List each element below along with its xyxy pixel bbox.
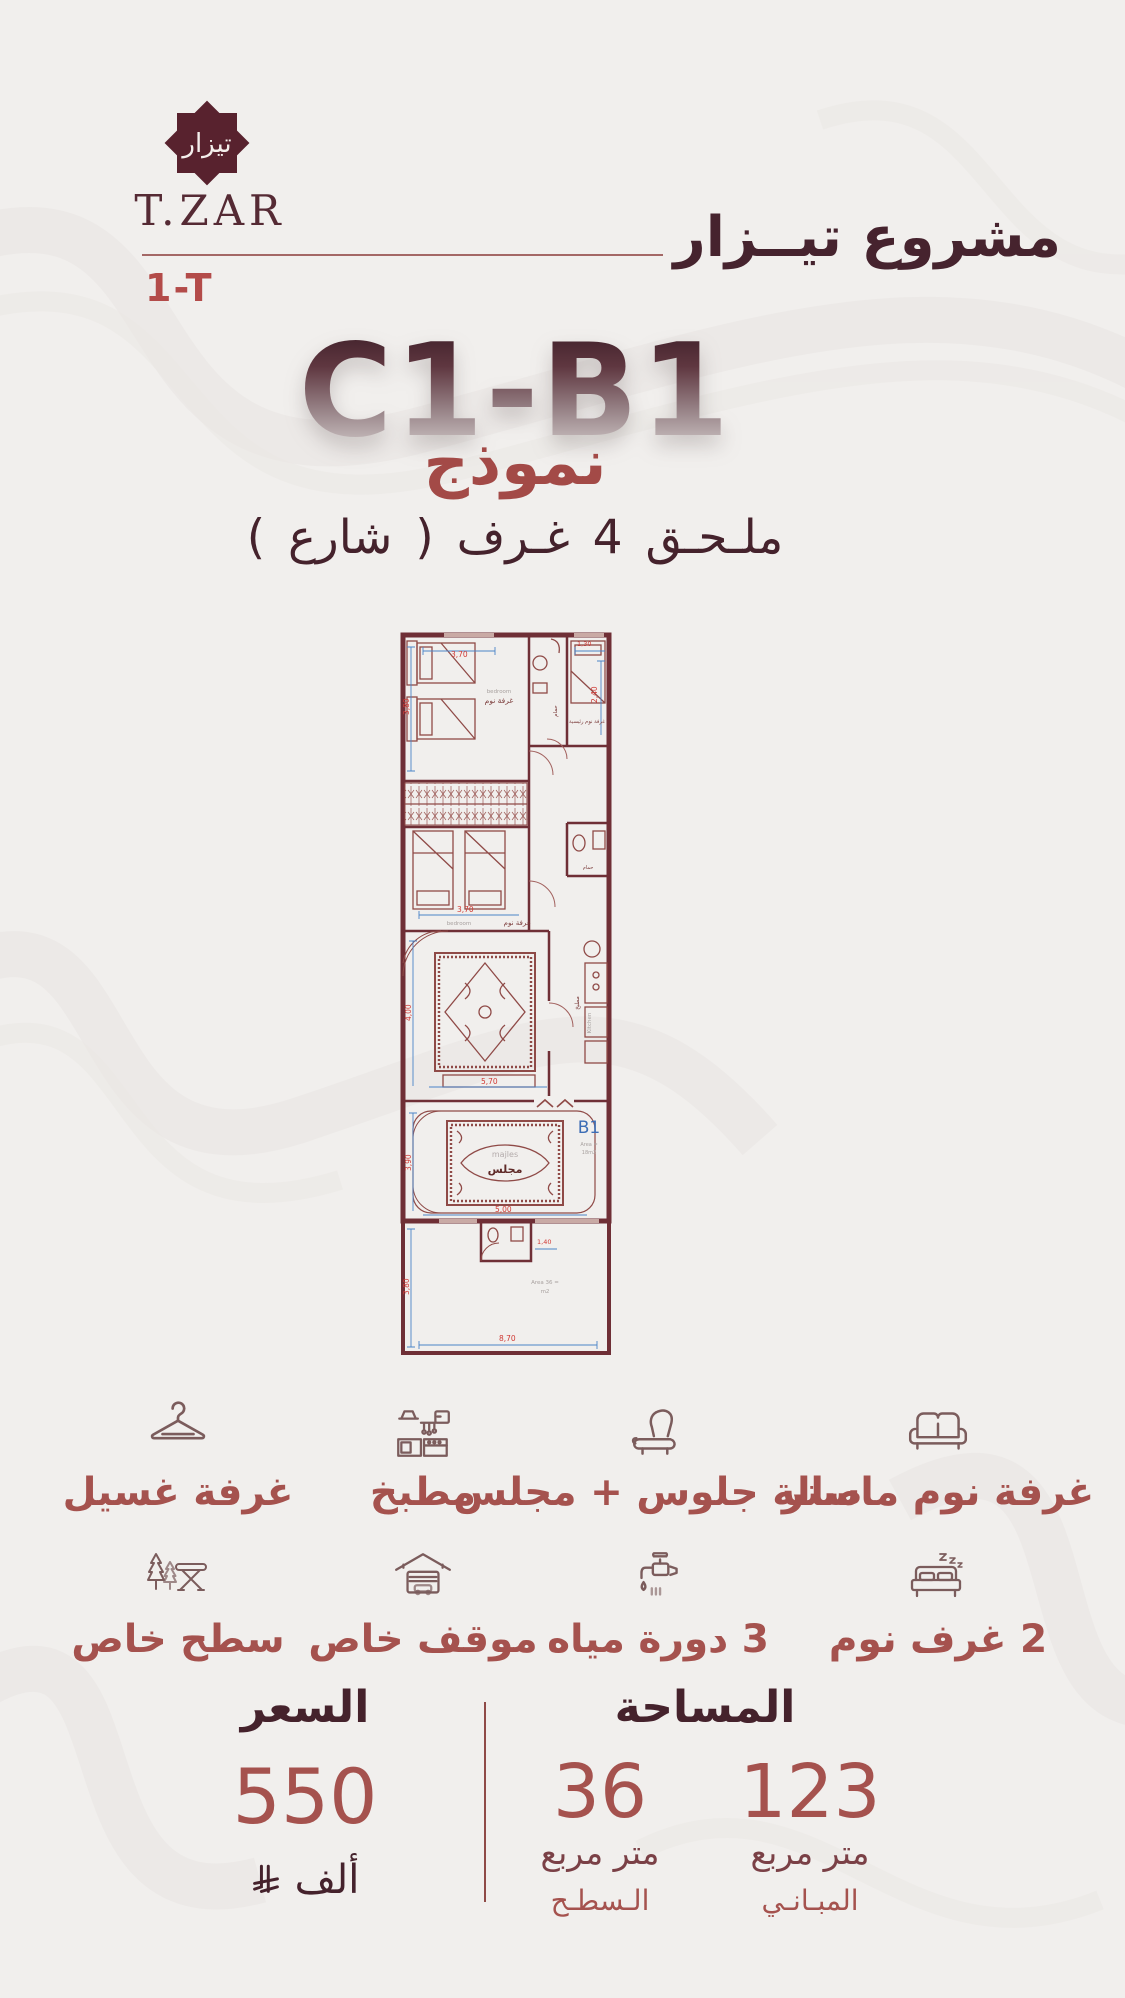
dim-entry: 1,30 [577, 640, 591, 648]
project-title: مشروع تيــزار [674, 205, 1062, 270]
majles-area-line1: Area = [580, 1142, 597, 1148]
feature-laundry-room: غرفة غسيل [38, 1392, 318, 1515]
feature-private-roof: سطح خاص [38, 1539, 318, 1662]
features-row-1: غرفة غسيل مطبخ [38, 1392, 1088, 1515]
feature-label: سطح خاص [71, 1617, 284, 1662]
armchair-icon [625, 1392, 691, 1464]
price-unit-label: ألف [295, 1857, 360, 1903]
page-background: تيزار T.ZAR 1-T مشروع تيــزار C1-B1 نموذ… [0, 0, 1125, 1998]
dim-roof-width: 8,70 [499, 1334, 516, 1343]
feature-label: موقف خاص [308, 1617, 537, 1662]
area-value: 36 [553, 1755, 647, 1829]
plan-walls [403, 635, 609, 1353]
unit-label: B1 [578, 1118, 600, 1138]
roof-area-line2: m2 [541, 1289, 550, 1295]
room-label-bedroom1: غرفة نوم [485, 696, 514, 705]
sofa-icon [903, 1392, 973, 1464]
room-label-bath2: حمام [583, 865, 594, 871]
feature-label: 3 دورة مياه [547, 1617, 769, 1662]
feature-bedrooms: 2 غرف نوم [788, 1539, 1088, 1662]
logo-star-icon: تيزار [160, 96, 254, 190]
features-row-2: سطح خاص موقف خاص [38, 1539, 1088, 1662]
features-grid: غرفة غسيل مطبخ [38, 1392, 1088, 1662]
area-value: 123 [739, 1755, 880, 1829]
feature-bathrooms: 3 دورة مياه [528, 1539, 788, 1662]
feature-label: غرفة نوم ماستر [782, 1470, 1094, 1515]
price-title: السعر [115, 1682, 495, 1733]
stats-divider [484, 1702, 486, 1902]
price-unit: ألف [115, 1857, 495, 1903]
room-label-bedroom1-en: bedroom [487, 689, 512, 695]
area-block: المساحة 123 متر مربع المبـانـي 36 متر مر… [495, 1682, 915, 1917]
feature-private-parking: موقف خاص [318, 1539, 528, 1662]
hanger-icon [145, 1392, 211, 1464]
area-items: 123 متر مربع المبـانـي 36 متر مربع الـسط… [495, 1755, 915, 1917]
room-label-kitchen-ar: مطبخ [574, 996, 581, 1010]
kitchen-icon [390, 1392, 456, 1464]
dim-majles-height: 3,90 [404, 1154, 413, 1171]
area-item-buildings: 123 متر مربع المبـانـي [705, 1755, 915, 1917]
dim-majles-width: 5,00 [495, 1205, 512, 1214]
area-title: المساحة [495, 1682, 915, 1733]
room-label-master: غرفة نوم رئيسية [569, 719, 605, 725]
brand-underline [142, 254, 663, 256]
floor-plan: 3,70 1,30 2,40 3,80 3,70 4,00 5,70 3,90 … [399, 631, 613, 1358]
dim-bed1-width: 3,70 [451, 650, 468, 659]
bed-icon [902, 1539, 974, 1611]
logo-arabic-text: تيزار [180, 129, 231, 159]
feature-living-majles: صالة جلوس + مجلس [528, 1392, 788, 1515]
picnic-trees-icon [142, 1539, 214, 1611]
roof-area-line1: Area 36 = [531, 1280, 559, 1286]
dim-living-width: 5,70 [481, 1077, 498, 1086]
dim-roof-height: 3,80 [402, 1278, 411, 1295]
room-label-bedroom2: غرفة نوم [504, 919, 531, 927]
area-sublabel: المبـانـي [762, 1884, 859, 1917]
price-block: السعر 550 ألف [115, 1682, 495, 1903]
majles-area-line2: 18m2 [582, 1150, 596, 1156]
area-item-roof: 36 متر مربع الـسطـح [495, 1755, 705, 1917]
dim-bed1-height: 3,80 [402, 698, 411, 715]
area-sublabel: الـسطـح [551, 1884, 650, 1917]
room-label-bath1: حمام [553, 705, 559, 717]
faucet-icon [625, 1539, 691, 1611]
dim-bath-height: 2,40 [590, 686, 599, 703]
area-unit: متر مربع [751, 1833, 870, 1872]
feature-label: 2 غرف نوم [829, 1617, 1047, 1662]
unit-code: 1-T [145, 266, 214, 310]
model-subtitle: ملـحـق 4 غـرف ( شارع ) [0, 510, 1030, 565]
room-label-bedroom2-en: bedroom [447, 921, 472, 927]
dim-bed2-width: 3,70 [457, 905, 474, 914]
feature-master-bedroom: غرفة نوم ماستر [788, 1392, 1088, 1515]
area-unit: متر مربع [541, 1833, 660, 1872]
dim-bath2-width: 1,40 [537, 1238, 551, 1246]
room-label-majles: مجلس [488, 1163, 523, 1176]
feature-label: غرفة غسيل [63, 1470, 294, 1515]
model-label: نموذج [0, 426, 1030, 499]
price-value: 550 [115, 1759, 495, 1835]
saudi-riyal-symbol-icon [251, 1864, 281, 1896]
garage-icon [390, 1539, 456, 1611]
room-label-kitchen-en: Kitchen [587, 1012, 593, 1033]
logo-wordmark: T.ZAR [90, 186, 330, 235]
room-label-majles-en: majles [492, 1150, 518, 1159]
dim-living-height: 4,00 [404, 1004, 413, 1021]
